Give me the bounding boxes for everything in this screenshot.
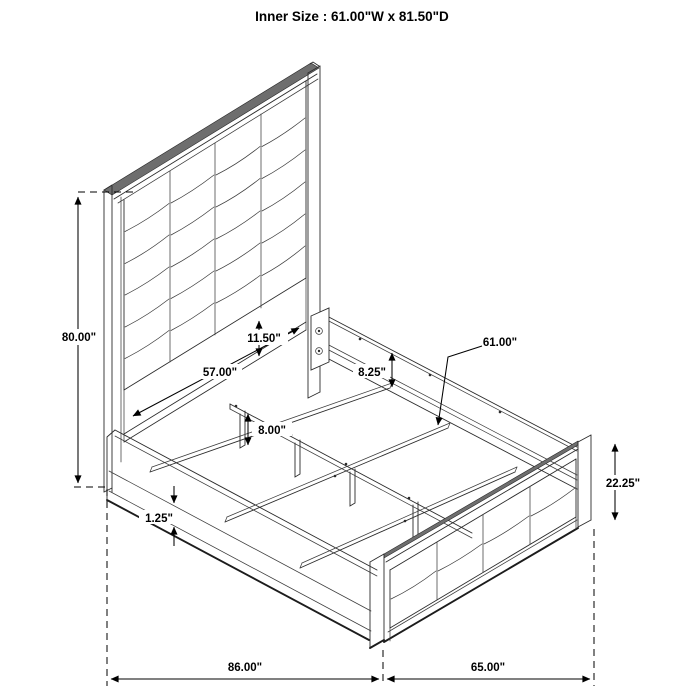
side-rail-near	[107, 430, 377, 640]
headboard-top-band	[104, 63, 319, 195]
diagram-title: Inner Size : 61.00"W x 81.50"D	[255, 9, 449, 24]
footboard	[370, 435, 591, 648]
slats	[150, 383, 517, 568]
footboard-top-band	[384, 441, 578, 558]
dim-overall-width-label: 65.00"	[471, 662, 505, 674]
dimension-labels: Inner Size : 61.00"W x 81.50"D 80.00" 11…	[56, 9, 647, 674]
bed-frame	[107, 308, 577, 640]
bed-dimension-diagram: Inner Size : 61.00"W x 81.50"D 80.00" 11…	[0, 0, 700, 700]
headboard-bracket	[311, 308, 329, 370]
dim-headboard-height-label: 80.00"	[62, 332, 96, 344]
dim-overall-depth-label: 86.00"	[228, 662, 262, 674]
side-rail-far	[325, 315, 577, 489]
dim-headboard-gap-label: 11.50"	[247, 333, 281, 345]
dim-rail-trim-height-label: 1.25"	[145, 513, 173, 525]
dim-support-leg-height-label: 8.00"	[258, 425, 286, 437]
dimension-lines	[74, 192, 615, 686]
dim-slat-length-label: 61.00"	[483, 337, 517, 349]
dim-footboard-height-label: 22.25"	[606, 478, 640, 490]
dim-headboard-panel-width-label: 57.00"	[203, 367, 237, 379]
dim-rail-to-slat-depth-label: 8.25"	[358, 367, 386, 379]
bed-dimension-diagram-page: Inner Size : 61.00"W x 81.50"D 80.00" 11…	[0, 0, 700, 700]
